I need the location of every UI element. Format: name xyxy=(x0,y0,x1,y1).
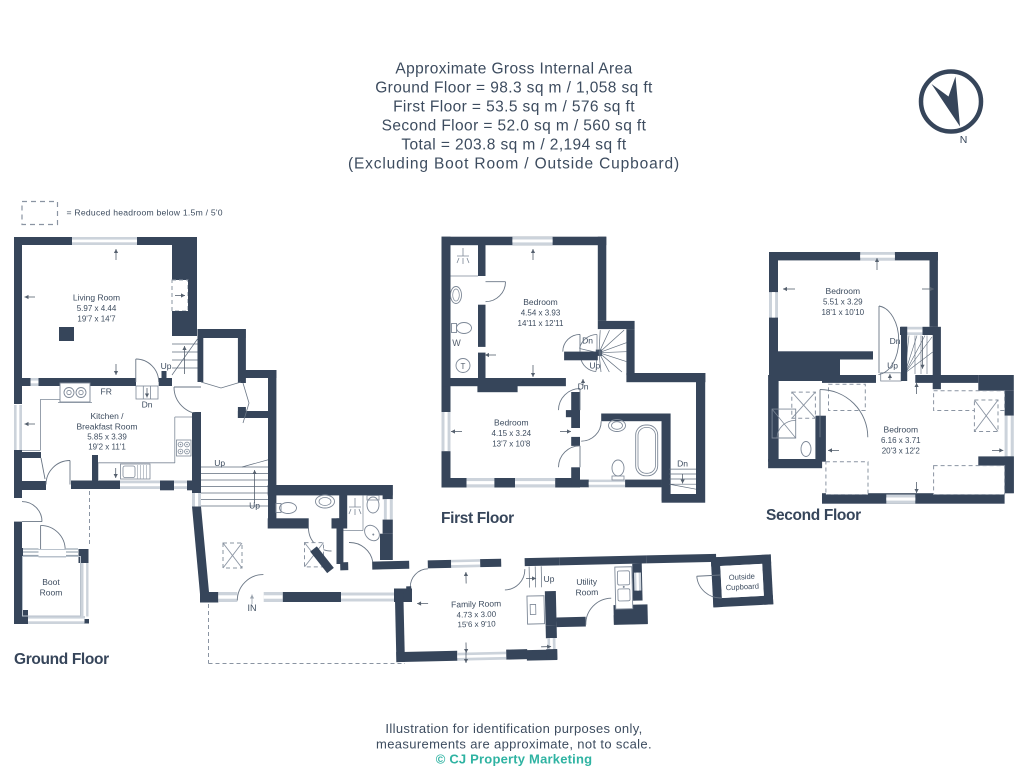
svg-text:Up: Up xyxy=(249,501,260,511)
svg-text:4.73 x 3.00: 4.73 x 3.00 xyxy=(456,610,496,620)
svg-text:Family Room: Family Room xyxy=(451,598,501,609)
svg-text:4.54 x 3.93: 4.54 x 3.93 xyxy=(521,309,561,318)
svg-text:Living Room: Living Room xyxy=(73,293,120,303)
svg-text:= Reduced headroom below 1.5m: = Reduced headroom below 1.5m / 5'0 xyxy=(67,208,223,218)
svg-text:5.51 x 3.29: 5.51 x 3.29 xyxy=(823,298,863,307)
svg-text:Approximate Gross Internal Are: Approximate Gross Internal Area xyxy=(395,61,632,78)
svg-text:19'7 x 14'7: 19'7 x 14'7 xyxy=(77,315,116,324)
svg-text:6.16 x 3.71: 6.16 x 3.71 xyxy=(881,436,921,445)
svg-text:© CJ Property Marketing: © CJ Property Marketing xyxy=(436,752,593,767)
svg-text:Up: Up xyxy=(543,574,554,584)
svg-text:Total = 203.8 sq m / 2,194 sq: Total = 203.8 sq m / 2,194 sq ft xyxy=(401,137,626,154)
svg-text:Ground Floor = 98.3 sq m / 1,0: Ground Floor = 98.3 sq m / 1,058 sq ft xyxy=(375,80,653,97)
svg-text:Utility: Utility xyxy=(576,577,598,587)
svg-text:Bedroom: Bedroom xyxy=(494,418,529,428)
svg-text:4.15 x 3.24: 4.15 x 3.24 xyxy=(492,429,532,438)
svg-text:N: N xyxy=(960,134,968,146)
svg-text:Bedroom: Bedroom xyxy=(523,297,558,307)
svg-text:(Excluding Boot Room / Outside: (Excluding Boot Room / Outside Cupboard) xyxy=(348,156,680,173)
svg-text:Bedroom: Bedroom xyxy=(826,286,861,296)
svg-text:Up: Up xyxy=(214,458,225,468)
svg-text:IN: IN xyxy=(248,603,257,613)
svg-text:5.97 x 4.44: 5.97 x 4.44 xyxy=(77,304,117,313)
svg-text:Breakfast Room: Breakfast Room xyxy=(77,422,138,432)
svg-text:Outside: Outside xyxy=(729,572,756,582)
svg-text:Ground Floor: Ground Floor xyxy=(14,651,109,668)
svg-text:Room: Room xyxy=(40,588,63,598)
svg-text:20'3 x 12'2: 20'3 x 12'2 xyxy=(882,447,921,456)
svg-text:Bedroom: Bedroom xyxy=(884,425,919,435)
svg-text:Kitchen /: Kitchen / xyxy=(90,411,124,421)
svg-text:19'2 x 11'1: 19'2 x 11'1 xyxy=(88,443,126,452)
svg-text:First Floor: First Floor xyxy=(441,510,514,527)
svg-text:Room: Room xyxy=(575,587,598,598)
svg-text:Dn: Dn xyxy=(677,459,688,469)
svg-text:15'6 x 9'10: 15'6 x 9'10 xyxy=(457,619,496,629)
svg-text:13'7 x 10'8: 13'7 x 10'8 xyxy=(492,440,531,449)
svg-text:14'11 x 12'11: 14'11 x 12'11 xyxy=(518,319,564,328)
svg-text:Second Floor: Second Floor xyxy=(766,507,861,524)
svg-text:Up: Up xyxy=(161,361,172,371)
svg-text:W: W xyxy=(452,338,461,348)
svg-text:T: T xyxy=(461,362,466,371)
svg-text:18'1 x 10'10: 18'1 x 10'10 xyxy=(821,308,864,317)
svg-text:Illustration for identificatio: Illustration for identification purposes… xyxy=(385,721,642,736)
svg-text:Dn: Dn xyxy=(142,400,153,410)
svg-text:Cupboard: Cupboard xyxy=(725,582,759,593)
svg-text:Second Floor = 52.0 sq m / 560: Second Floor = 52.0 sq m / 560 sq ft xyxy=(382,118,647,135)
svg-text:5.85 x 3.39: 5.85 x 3.39 xyxy=(87,433,127,442)
svg-text:Up: Up xyxy=(589,361,600,371)
svg-text:FR: FR xyxy=(101,387,112,397)
svg-text:measurements are approximate,: measurements are approximate, not to sca… xyxy=(376,737,652,752)
svg-text:Boot: Boot xyxy=(42,577,60,587)
svg-text:First Floor = 53.5 sq m / 576: First Floor = 53.5 sq m / 576 sq ft xyxy=(393,99,635,116)
